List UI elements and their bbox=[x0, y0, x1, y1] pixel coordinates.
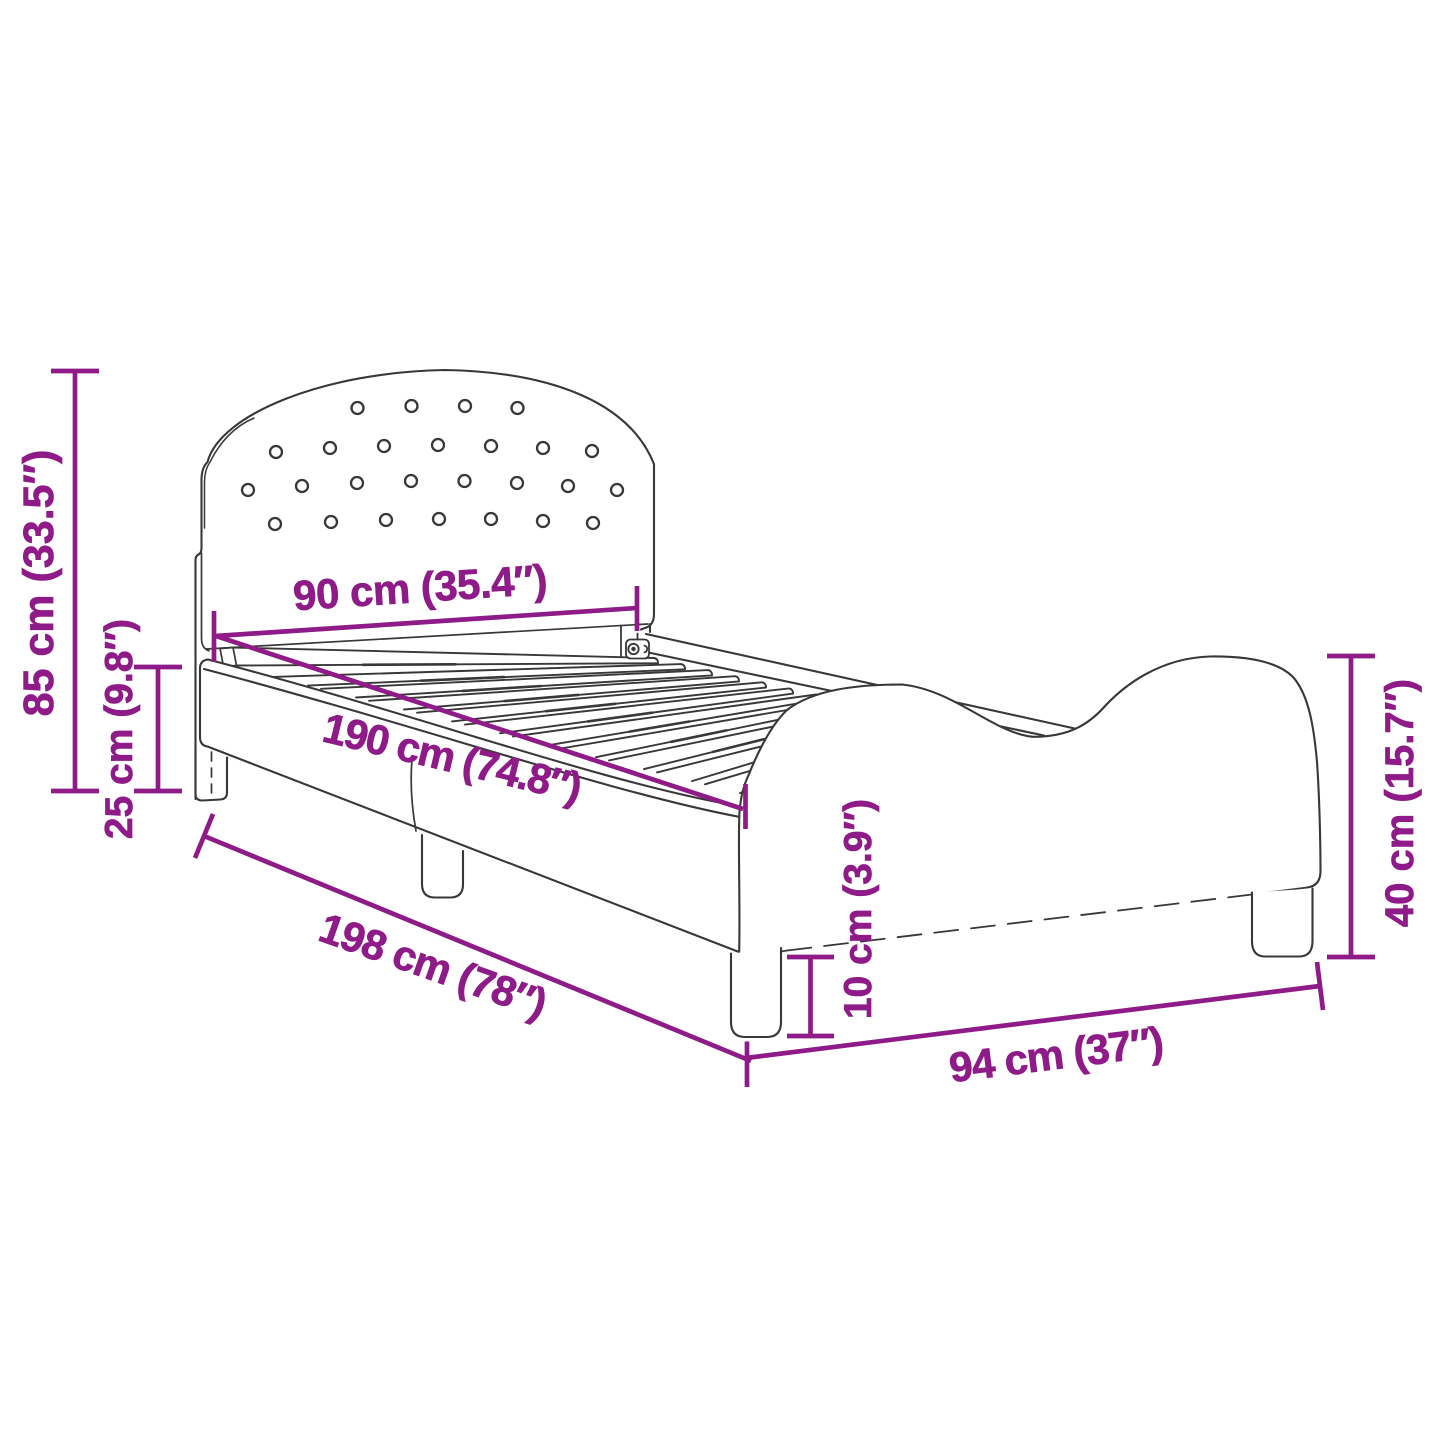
svg-text:10 cm (3.9″): 10 cm (3.9″) bbox=[837, 799, 880, 1019]
svg-text:40 cm (15.7″): 40 cm (15.7″) bbox=[1378, 679, 1422, 927]
svg-text:25 cm (9.8″): 25 cm (9.8″) bbox=[98, 619, 141, 839]
svg-text:85 cm (33.5″): 85 cm (33.5″) bbox=[15, 450, 63, 717]
